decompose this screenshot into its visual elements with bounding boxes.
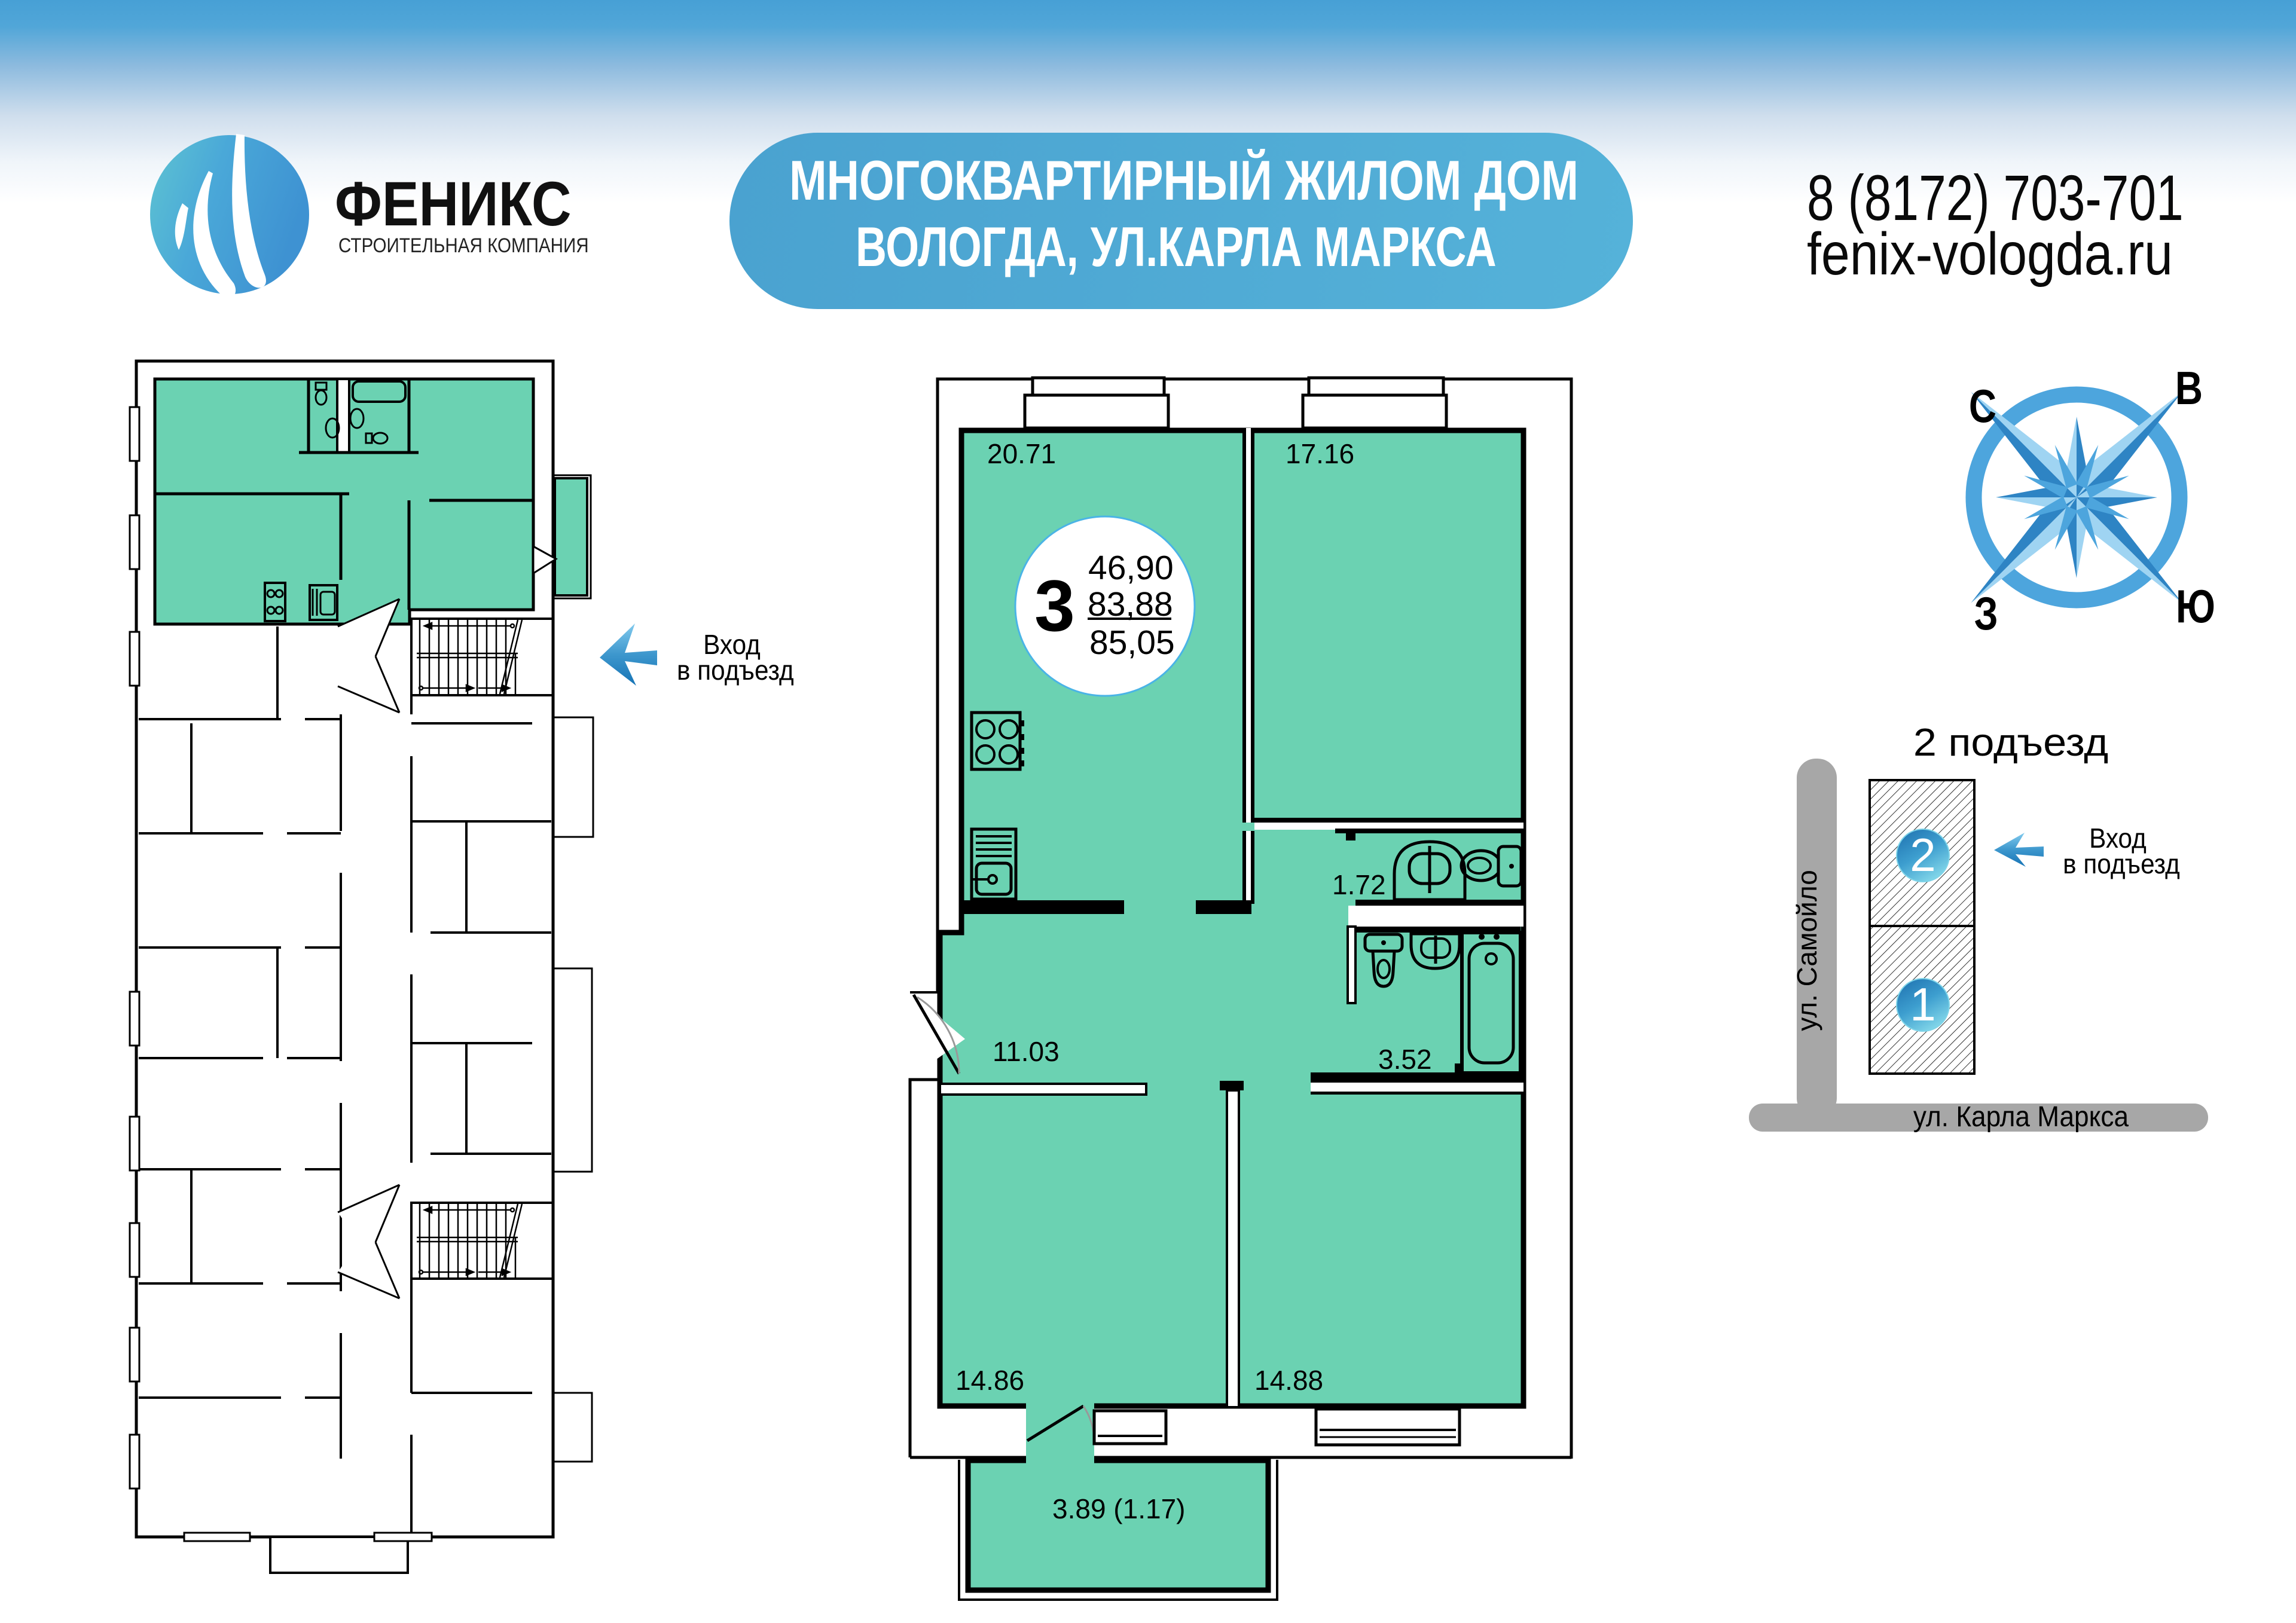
svg-text:в подъезд: в подъезд <box>2063 849 2180 879</box>
svg-text:46,90: 46,90 <box>1088 549 1174 587</box>
svg-text:З: З <box>1974 588 1998 640</box>
svg-text:С: С <box>1969 380 1996 432</box>
svg-text:2: 2 <box>1910 829 1935 881</box>
svg-text:Ю: Ю <box>2176 580 2215 632</box>
svg-text:ул. Самойло: ул. Самойло <box>1791 870 1822 1031</box>
svg-text:14.88: 14.88 <box>1254 1365 1323 1396</box>
svg-text:11.03: 11.03 <box>993 1036 1060 1067</box>
svg-text:3.52: 3.52 <box>1378 1044 1432 1075</box>
svg-text:2 подъезд: 2 подъезд <box>1913 721 2108 764</box>
svg-text:14.86: 14.86 <box>955 1365 1024 1396</box>
svg-text:ул. Карла Маркса: ул. Карла Маркса <box>1913 1100 2129 1132</box>
svg-text:85,05: 85,05 <box>1089 623 1175 662</box>
svg-text:В: В <box>2175 362 2203 414</box>
svg-text:1.72: 1.72 <box>1332 869 1386 900</box>
svg-text:3.89 (1.17): 3.89 (1.17) <box>1052 1493 1185 1524</box>
svg-text:1: 1 <box>1910 978 1935 1031</box>
svg-text:17.16: 17.16 <box>1286 438 1354 469</box>
svg-text:20.71: 20.71 <box>987 438 1056 469</box>
svg-text:3: 3 <box>1034 565 1075 646</box>
